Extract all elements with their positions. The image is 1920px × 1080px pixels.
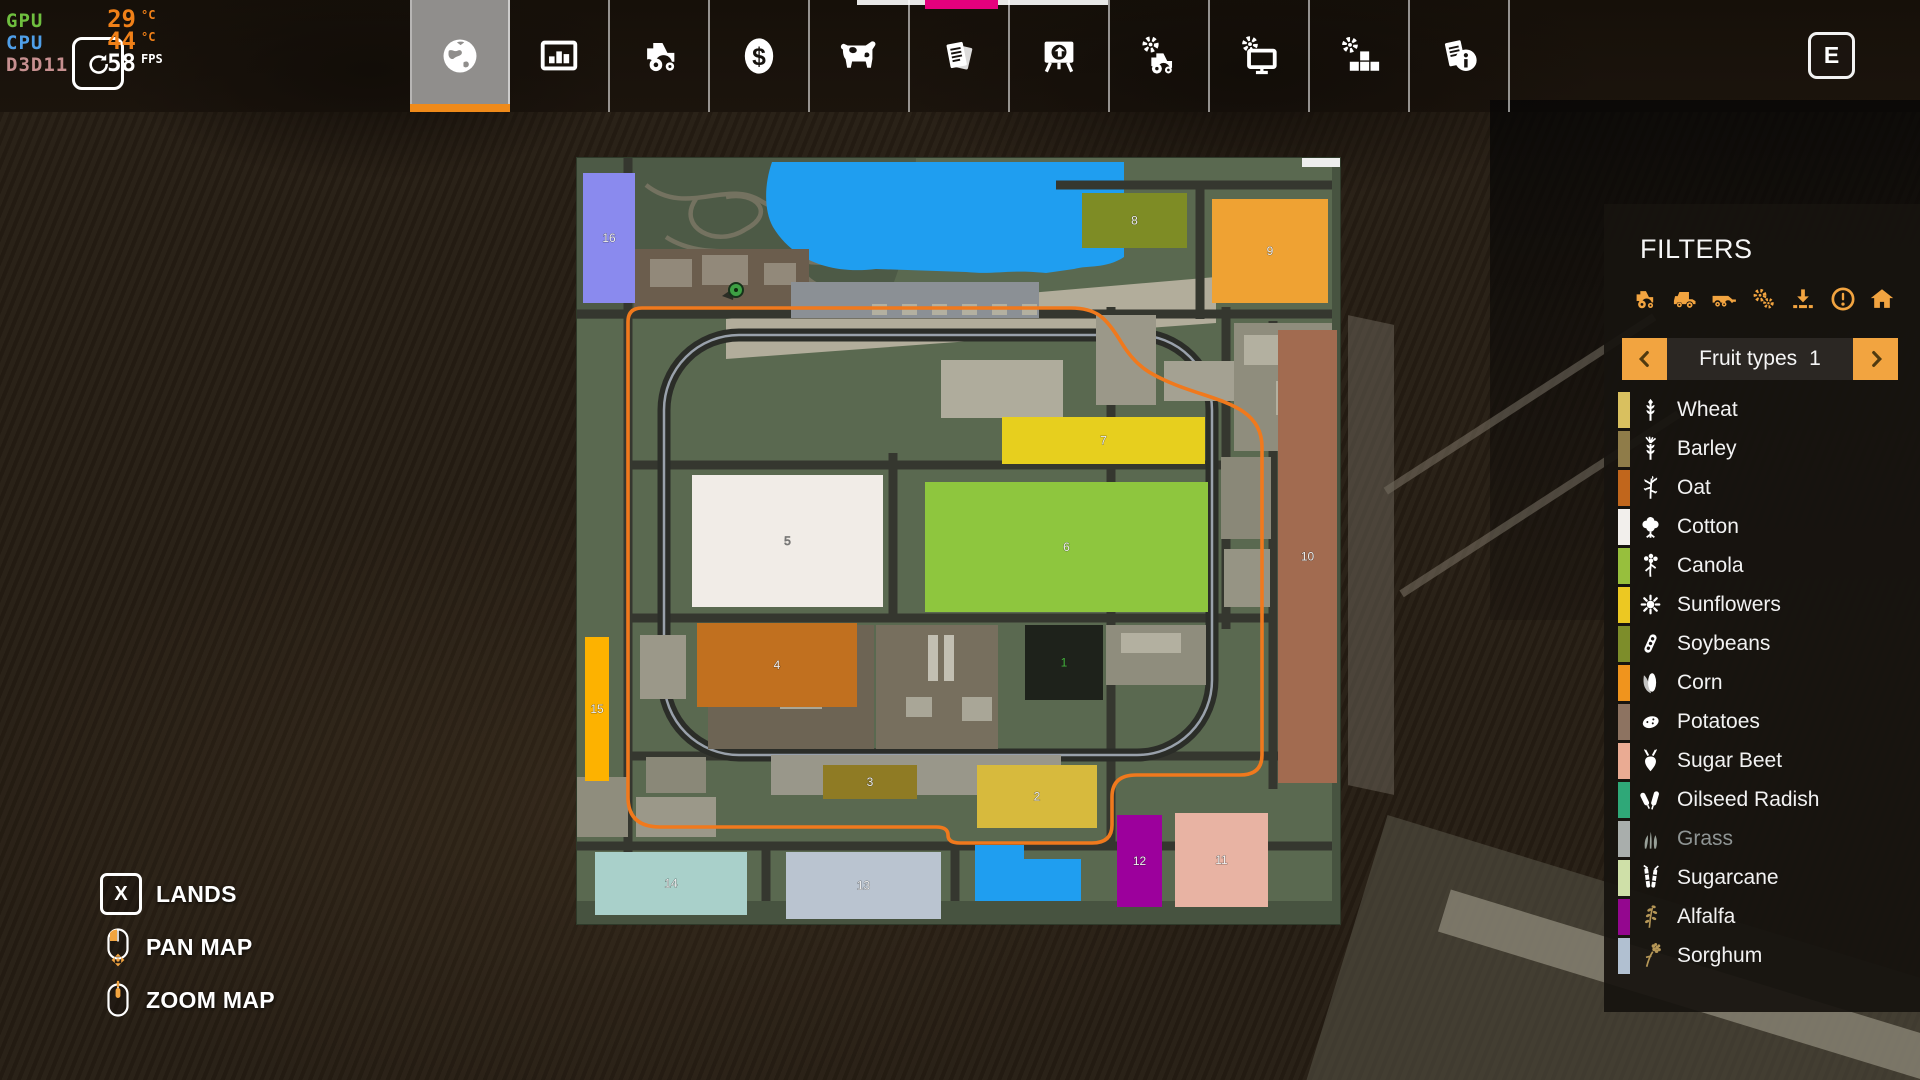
filter-trailers-toggle[interactable] xyxy=(1710,285,1738,318)
crop-color-swatch xyxy=(1618,782,1630,818)
crop-color-swatch xyxy=(1618,743,1630,779)
tab-vehicles[interactable] xyxy=(610,0,710,112)
crop-color-swatch xyxy=(1618,548,1630,584)
tab-help[interactable] xyxy=(1410,0,1510,112)
crop-name: Barley xyxy=(1677,437,1737,461)
crop-name: Cotton xyxy=(1677,515,1739,539)
fruit-type-list: WheatBarleyOatCottonCanolaSunflowersSoyb… xyxy=(1604,390,1920,975)
gpu-temp-unit: °C xyxy=(141,8,155,22)
zoom-map-hint: ZOOM MAP xyxy=(100,980,275,1020)
crop-name: Grass xyxy=(1677,827,1733,851)
crop-color-swatch xyxy=(1618,509,1630,545)
i-soy-icon xyxy=(1637,630,1664,657)
crop-name: Sugar Beet xyxy=(1677,749,1782,773)
fruit-item-cotton[interactable]: Cotton xyxy=(1604,507,1920,546)
filter-harvesters-toggle[interactable] xyxy=(1671,285,1699,318)
map-view[interactable]: 16897654110321514131211 xyxy=(576,157,1341,925)
t-paper-info-icon xyxy=(1436,33,1482,79)
map-field-16[interactable]: 16 xyxy=(583,173,635,303)
c-gears-icon xyxy=(1750,285,1778,313)
control-hints: X LANDS PAN MAP ZOOM xyxy=(100,874,275,1033)
crop-name: Sugarcane xyxy=(1677,866,1779,890)
t-blocks-gear-icon xyxy=(1336,33,1382,79)
lands-label: LANDS xyxy=(156,881,237,908)
field-number-label: 14 xyxy=(664,877,678,891)
field-number-label: 8 xyxy=(1131,214,1138,228)
t-dollar-icon xyxy=(736,33,782,79)
fruit-item-potatoes[interactable]: Potatoes xyxy=(1604,702,1920,741)
map-field-5[interactable]: 5 xyxy=(692,475,883,607)
map-field-11[interactable]: 11 xyxy=(1175,813,1268,907)
i-alfalfa-icon xyxy=(1637,903,1664,930)
gpu-temp-row: GPU 29 °C xyxy=(6,5,163,27)
fruit-item-sugar-beet[interactable]: Sugar Beet xyxy=(1604,741,1920,780)
crop-name: Soybeans xyxy=(1677,632,1770,656)
i-radish-icon xyxy=(1637,786,1664,813)
crop-name: Potatoes xyxy=(1677,710,1760,734)
selected-tab-underline xyxy=(410,104,510,112)
hotkey-e-button[interactable]: E xyxy=(1808,32,1855,79)
field-number-label: 9 xyxy=(1267,244,1274,258)
fruit-item-sorghum[interactable]: Sorghum xyxy=(1604,936,1920,975)
field-number-label: 12 xyxy=(1133,854,1147,868)
hotkey-e-label: E xyxy=(1824,42,1839,69)
crop-name: Oat xyxy=(1677,476,1711,500)
fruit-item-wheat[interactable]: Wheat xyxy=(1604,390,1920,429)
fruit-item-oat[interactable]: Oat xyxy=(1604,468,1920,507)
t-papers-icon xyxy=(936,33,982,79)
zoom-map-label: ZOOM MAP xyxy=(146,987,275,1014)
c-download-icon xyxy=(1789,285,1817,313)
crop-color-swatch xyxy=(1618,470,1630,506)
mouse-pan-icon xyxy=(104,927,132,967)
field-number-label: 4 xyxy=(774,658,781,672)
fps-value: 58 xyxy=(92,49,136,77)
filter-tools-toggle[interactable] xyxy=(1750,285,1778,318)
crop-color-swatch xyxy=(1618,938,1630,974)
field-number-label: 2 xyxy=(1034,790,1041,804)
c-alert-icon xyxy=(1829,285,1857,313)
map-field-10[interactable]: 10 xyxy=(1278,330,1337,783)
crop-name: Wheat xyxy=(1677,398,1738,422)
map-field-13[interactable]: 13 xyxy=(786,852,941,919)
map-field-1[interactable]: 1 xyxy=(1025,625,1103,700)
fruit-item-sunflowers[interactable]: Sunflowers xyxy=(1604,585,1920,624)
tab-game-settings[interactable] xyxy=(1310,0,1410,112)
crop-color-swatch xyxy=(1618,821,1630,857)
filter-page-name: Fruit types xyxy=(1699,347,1797,371)
map-field-15[interactable]: 15 xyxy=(585,637,609,781)
field-number-label: 7 xyxy=(1100,434,1107,448)
i-barley-icon xyxy=(1637,435,1664,462)
crop-color-swatch xyxy=(1618,626,1630,662)
t-cow-icon xyxy=(836,33,882,79)
crop-color-swatch xyxy=(1618,704,1630,740)
field-number-label: 13 xyxy=(857,879,871,893)
t-monitor-gear-icon xyxy=(1236,33,1282,79)
c-combine-icon xyxy=(1671,285,1699,313)
map-field-12[interactable]: 12 xyxy=(1117,815,1162,907)
t-chart-icon xyxy=(536,33,582,79)
chevron-right-icon xyxy=(1865,348,1887,370)
map-field-2[interactable]: 2 xyxy=(977,765,1097,828)
filter-unloading-points-toggle[interactable] xyxy=(1789,285,1817,318)
tab-map[interactable] xyxy=(410,0,510,112)
fps-row: D3D11 58 FPS xyxy=(6,49,163,71)
tab-contracts[interactable] xyxy=(910,0,1010,112)
minimap: 16897654110321514131211 xyxy=(576,157,1341,925)
i-grass-icon xyxy=(1637,825,1664,852)
mouse-zoom-icon xyxy=(104,980,132,1020)
cpu-temp-row: CPU 44 °C xyxy=(6,27,163,49)
filter-page-label: Fruit types 1 xyxy=(1667,338,1853,380)
crop-color-swatch xyxy=(1618,899,1630,935)
filter-tractors-toggle[interactable] xyxy=(1631,285,1659,318)
performance-overlay: GPU 29 °C CPU 44 °C D3D11 58 FPS xyxy=(6,5,163,71)
i-corn-icon xyxy=(1637,669,1664,696)
map-field-14[interactable]: 14 xyxy=(595,852,747,915)
t-tractor-icon xyxy=(636,33,682,79)
t-tractor-gear-icon xyxy=(1136,33,1182,79)
crop-name: Canola xyxy=(1677,554,1744,578)
filter-page-count: 1 xyxy=(1809,347,1821,371)
tab-production[interactable] xyxy=(1010,0,1110,112)
crop-color-swatch xyxy=(1618,587,1630,623)
i-wheat-icon xyxy=(1637,396,1664,423)
pan-map-label: PAN MAP xyxy=(146,934,252,961)
crop-name: Alfalfa xyxy=(1677,905,1735,929)
game-screen: GPU 29 °C CPU 44 °C D3D11 58 FPS E xyxy=(0,0,1920,1080)
filter-buildings-toggle[interactable] xyxy=(1868,285,1896,318)
map-field-3[interactable]: 3 xyxy=(823,765,917,799)
tab-animals[interactable] xyxy=(810,0,910,112)
map-field-6[interactable]: 6 xyxy=(925,482,1208,612)
i-beet-icon xyxy=(1637,747,1664,774)
filter-warnings-toggle[interactable] xyxy=(1829,285,1857,318)
prev-filter-page-button[interactable] xyxy=(1622,338,1667,380)
crop-name: Sorghum xyxy=(1677,944,1762,968)
field-number-label: 16 xyxy=(602,231,616,245)
fruit-item-sugarcane[interactable]: Sugarcane xyxy=(1604,858,1920,897)
crop-color-swatch xyxy=(1618,860,1630,896)
map-field-7[interactable]: 7 xyxy=(1002,417,1205,464)
lands-hint: X LANDS xyxy=(100,874,275,914)
fruit-item-canola[interactable]: Canola xyxy=(1604,546,1920,585)
fruit-item-corn[interactable]: Corn xyxy=(1604,663,1920,702)
filters-title: FILTERS xyxy=(1640,234,1920,265)
crop-color-swatch xyxy=(1618,431,1630,467)
i-cane-icon xyxy=(1637,864,1664,891)
crop-name: Oilseed Radish xyxy=(1677,788,1819,812)
crop-color-swatch xyxy=(1618,665,1630,701)
graphics-api-label: D3D11 xyxy=(6,54,92,76)
map-field-4[interactable]: 4 xyxy=(697,623,857,707)
t-easel-icon xyxy=(1036,33,1082,79)
i-sunflower-icon xyxy=(1637,591,1664,618)
field-number-label: 10 xyxy=(1301,550,1315,564)
x-key-icon: X xyxy=(100,873,142,915)
field-number-label: 15 xyxy=(590,702,604,716)
i-canola-icon xyxy=(1637,552,1664,579)
i-cotton-icon xyxy=(1637,513,1664,540)
filter-page-selector: Fruit types 1 xyxy=(1622,338,1898,380)
tab-finances[interactable] xyxy=(710,0,810,112)
fruit-item-oilseed-radish[interactable]: Oilseed Radish xyxy=(1604,780,1920,819)
crop-color-swatch xyxy=(1618,392,1630,428)
filter-category-icons xyxy=(1631,285,1896,318)
map-field-9[interactable]: 9 xyxy=(1212,199,1328,303)
tab-statistics[interactable] xyxy=(510,0,610,112)
crop-name: Corn xyxy=(1677,671,1723,695)
t-globe-icon xyxy=(437,33,483,79)
i-oat-icon xyxy=(1637,474,1664,501)
map-field-8[interactable]: 8 xyxy=(1082,193,1187,248)
fruit-item-grass[interactable]: Grass xyxy=(1604,819,1920,858)
pan-map-hint: PAN MAP xyxy=(100,927,275,967)
field-number-label: 1 xyxy=(1061,656,1068,670)
crop-name: Sunflowers xyxy=(1677,593,1781,617)
c-trailer-icon xyxy=(1710,285,1738,313)
next-filter-page-button[interactable] xyxy=(1853,338,1898,380)
tab-display-settings[interactable] xyxy=(1210,0,1310,112)
tab-garage[interactable] xyxy=(1110,0,1210,112)
i-potato-icon xyxy=(1637,708,1664,735)
fruit-item-alfalfa[interactable]: Alfalfa xyxy=(1604,897,1920,936)
filters-panel: FILTERS Fruit types 1 WheatBarleyOatCott… xyxy=(1604,204,1920,1012)
c-house-icon xyxy=(1868,285,1896,313)
cpu-temp-unit: °C xyxy=(141,30,155,44)
top-menu-toolbar xyxy=(410,0,1510,112)
i-sorghum-icon xyxy=(1637,942,1664,969)
fps-unit: FPS xyxy=(141,52,163,66)
concrete-wall xyxy=(1348,315,1394,795)
c-tractor-icon xyxy=(1631,285,1659,313)
chevron-left-icon xyxy=(1634,348,1656,370)
field-number-label: 3 xyxy=(867,775,874,789)
field-number-label: 6 xyxy=(1063,540,1070,554)
field-number-label: 11 xyxy=(1215,853,1228,867)
fruit-item-barley[interactable]: Barley xyxy=(1604,429,1920,468)
field-number-label: 5 xyxy=(784,534,791,548)
fruit-item-soybeans[interactable]: Soybeans xyxy=(1604,624,1920,663)
